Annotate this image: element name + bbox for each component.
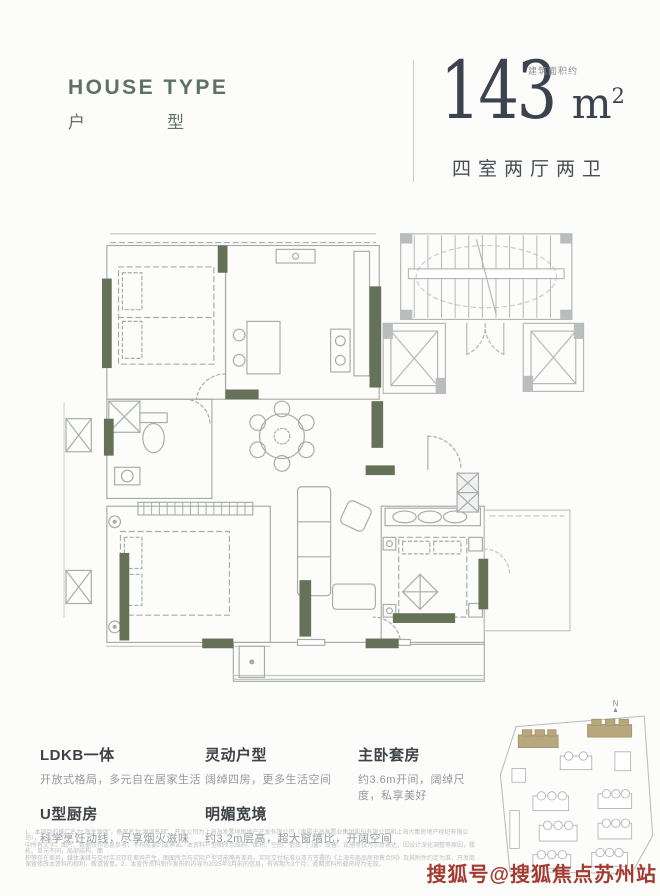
feature-title: U型厨房 <box>40 803 201 824</box>
page-title-cn-char1: 户 <box>68 108 85 133</box>
disclaimer-line: 中所有文字、图片、数据仅作信息参考，不构成要约或承诺。本资料户型图所示结构、面积… <box>25 843 483 856</box>
area-note: 建筑面积约 <box>528 64 578 77</box>
area-unit: m2 <box>572 79 625 128</box>
disclaimer-line: 1、本项目的推广名为“海发源颂”，备案名为“源颂名邸”，开发公司为上海海发置地房… <box>25 830 483 843</box>
feature-title: LDKB一体 <box>40 744 201 765</box>
area-row: 143 m2 建筑面积约 <box>440 42 625 142</box>
layout-description: 四室两厅两卫 <box>440 154 625 181</box>
floor-plan <box>62 228 607 706</box>
site-plan-svg <box>497 714 655 882</box>
floor-plan-svg <box>62 228 607 693</box>
core-stairs-elevators <box>383 234 583 394</box>
feature-desc: 开放式格局，多元自在居家生活 <box>40 771 201 787</box>
area-block: 143 m2 建筑面积约 四室两厅两卫 <box>440 42 625 181</box>
page-title-cn-char2: 型 <box>167 108 184 133</box>
area-number: 143 <box>440 42 555 140</box>
north-indicator: N ▲ <box>612 700 619 714</box>
header-divider <box>413 60 414 182</box>
page-title-cn: 户 型 <box>68 108 184 133</box>
green-wall-accents <box>102 246 488 649</box>
disclaimer-line: 保留修改本资料的权利，敬请留意。2、本宣传资料制作发布的内容为2025年3月前的… <box>25 862 483 868</box>
feature-title: 主卧套房 <box>358 744 480 765</box>
north-label: N <box>612 700 619 707</box>
feature-desc: 约3.6m开间，阔绰尺度，私享美好 <box>358 771 480 803</box>
disclaimer-text: 1、本项目的推广名为“海发源颂”，备案名为“源颂名邸”，开发公司为上海海发置地房… <box>25 830 483 868</box>
page-title-en: HOUSE TYPE <box>68 76 228 100</box>
feature-item: LDKB一体 开放式格局，多元自在居家生活 <box>40 744 201 787</box>
watermark: 搜狐号@搜狐焦点苏州站 <box>426 858 657 887</box>
north-arrow-icon: ▲ <box>612 707 619 714</box>
feature-col-3: 主卧套房 约3.6m开间，阔绰尺度，私享美好 <box>358 744 480 819</box>
feature-item: 主卧套房 约3.6m开间，阔绰尺度，私享美好 <box>358 744 480 803</box>
page-title-block: HOUSE TYPE 户 型 <box>68 76 228 133</box>
highlighted-buildings <box>518 719 631 747</box>
outline-buildings <box>510 752 632 869</box>
